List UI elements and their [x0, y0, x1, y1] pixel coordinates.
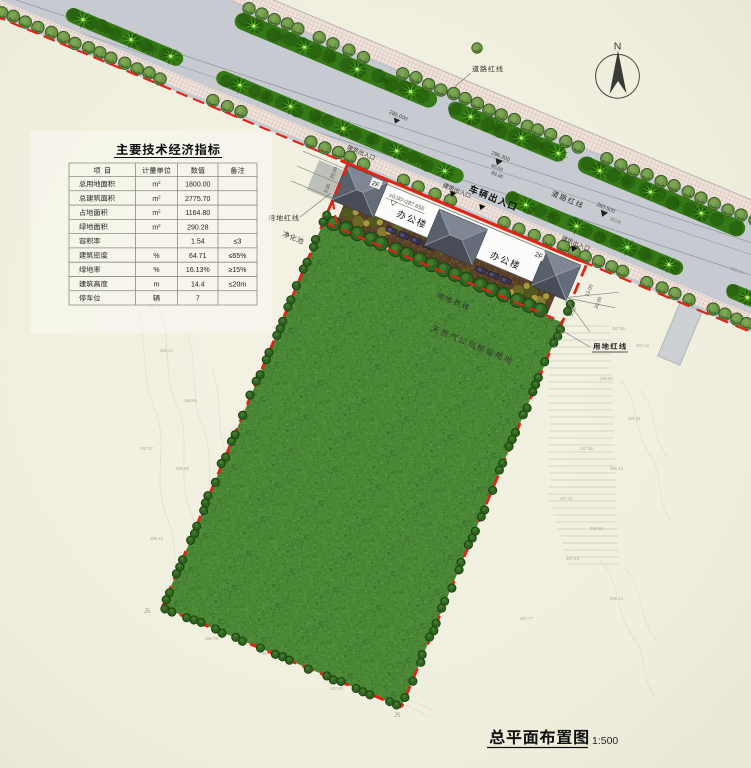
- svg-text:287.13: 287.13: [636, 343, 649, 348]
- svg-text:287.55: 287.55: [580, 446, 593, 451]
- svg-text:286.85: 286.85: [590, 526, 603, 531]
- svg-text:≥15%: ≥15%: [229, 267, 247, 274]
- svg-text:287.31: 287.31: [628, 416, 641, 421]
- svg-text:287.21: 287.21: [560, 496, 573, 501]
- svg-text:287.27: 287.27: [140, 446, 153, 451]
- svg-text:J5: J5: [144, 609, 151, 615]
- svg-text:16.13%: 16.13%: [186, 267, 210, 274]
- svg-text:286.44: 286.44: [610, 466, 623, 471]
- svg-text:286.13: 286.13: [160, 348, 173, 353]
- svg-text:288.18: 288.18: [150, 536, 163, 541]
- svg-text:%: %: [153, 253, 159, 260]
- svg-text:1164.80: 1164.80: [185, 210, 210, 217]
- svg-text:7: 7: [196, 296, 200, 303]
- svg-text:290.28: 290.28: [187, 224, 209, 231]
- svg-text:1.54: 1.54: [191, 239, 205, 246]
- svg-text:≤20m: ≤20m: [229, 282, 247, 289]
- svg-text:286.98: 286.98: [176, 466, 189, 471]
- svg-text:2775.70: 2775.70: [185, 196, 210, 203]
- svg-text:287.48: 287.48: [330, 686, 343, 691]
- svg-text:14.4: 14.4: [191, 282, 205, 289]
- svg-text:286.79: 286.79: [205, 636, 218, 641]
- svg-text:J5: J5: [394, 713, 401, 719]
- svg-text:287.77: 287.77: [520, 616, 533, 621]
- svg-text:%: %: [153, 267, 159, 274]
- svg-text:286.13: 286.13: [610, 596, 623, 601]
- svg-text:64.71: 64.71: [189, 253, 207, 260]
- svg-text:≤65%: ≤65%: [229, 253, 247, 260]
- svg-text:1:500: 1:500: [592, 735, 618, 747]
- svg-text:286.66: 286.66: [184, 398, 197, 403]
- svg-text:m: m: [154, 282, 160, 289]
- svg-text:287.88: 287.88: [612, 326, 625, 331]
- svg-text:≤3: ≤3: [234, 239, 242, 246]
- svg-text:286.92: 286.92: [600, 376, 613, 381]
- svg-text:1800.00: 1800.00: [185, 182, 210, 189]
- svg-text:N: N: [614, 41, 622, 53]
